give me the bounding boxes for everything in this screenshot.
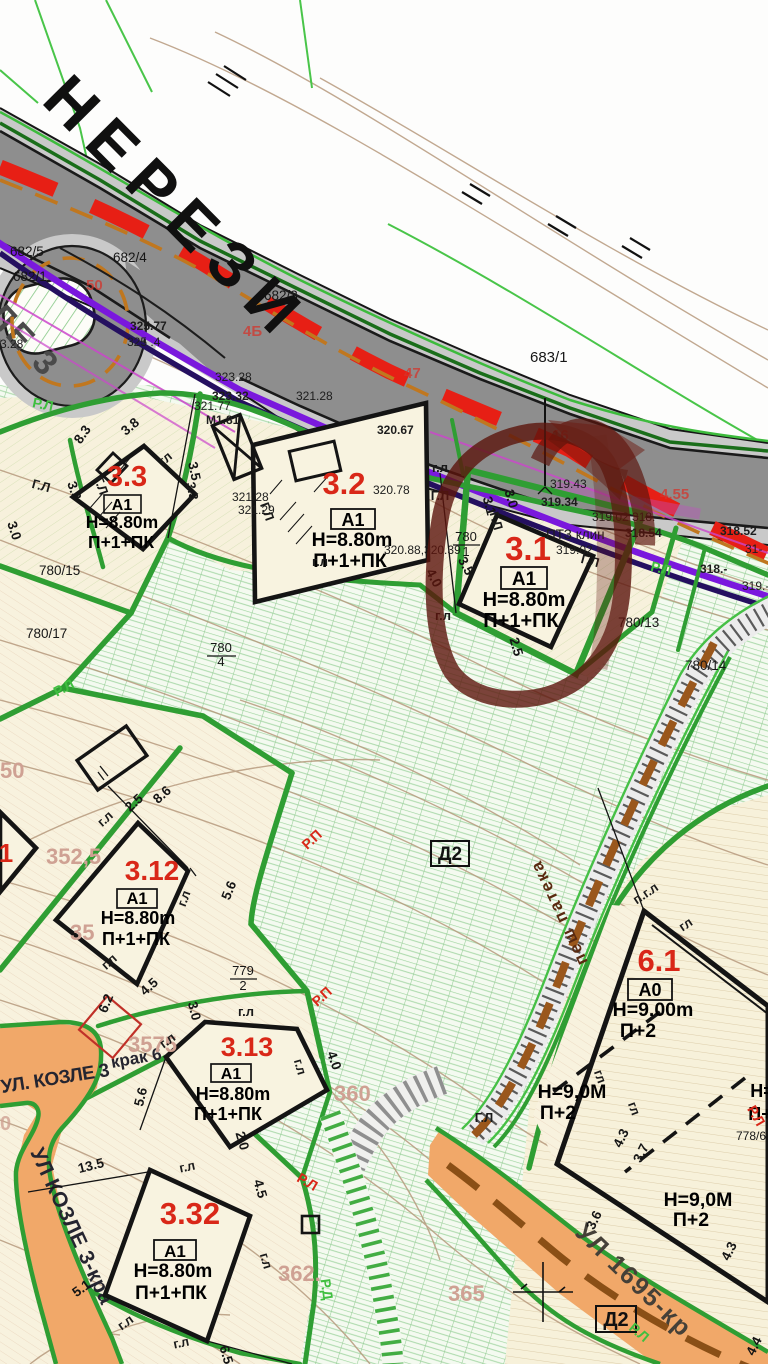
- svg-text:319.-: 319.-: [742, 579, 768, 593]
- svg-text:325 .4: 325 .4: [127, 335, 161, 349]
- svg-text:3.28: 3.28: [0, 337, 24, 351]
- svg-text:318.52: 318.52: [720, 524, 757, 538]
- svg-text:321.28: 321.28: [296, 389, 333, 403]
- svg-text:Н=8.80m: Н=8.80m: [483, 589, 566, 611]
- svg-text:П+2: П+2: [540, 1102, 576, 1124]
- svg-text:3.3: 3.3: [107, 461, 147, 493]
- svg-text:360: 360: [334, 1081, 371, 1106]
- svg-text:780: 780: [210, 640, 232, 655]
- svg-text:319.34: 319.34: [541, 495, 578, 509]
- svg-text:318.-: 318.-: [700, 562, 727, 576]
- svg-text:Г.Л: Г.Л: [475, 1110, 493, 1125]
- svg-text:А1: А1: [164, 1242, 186, 1261]
- svg-text:682/5: 682/5: [10, 244, 44, 259]
- svg-text:Н=: Н=: [750, 1081, 768, 1101]
- svg-text:50: 50: [86, 277, 103, 294]
- svg-text:А1: А1: [341, 510, 364, 530]
- svg-text:П+1+ПК: П+1+ПК: [88, 532, 154, 552]
- svg-text:683/1: 683/1: [530, 349, 568, 366]
- svg-text:35: 35: [70, 920, 94, 945]
- svg-text:2: 2: [239, 978, 246, 993]
- svg-text:320.67: 320.67: [377, 423, 414, 437]
- svg-text:г.л: г.л: [312, 554, 328, 569]
- svg-text:П+2: П+2: [620, 1020, 656, 1042]
- svg-text:780/14: 780/14: [685, 658, 727, 673]
- svg-text:3.12: 3.12: [125, 855, 180, 886]
- svg-text:4.55: 4.55: [660, 486, 689, 503]
- svg-text:321.77: 321.77: [194, 399, 231, 413]
- svg-text:319.43: 319.43: [550, 477, 587, 491]
- svg-text:П+1+ПК: П+1+ПК: [135, 1283, 207, 1304]
- svg-text:Р.Д: Р.Д: [318, 1278, 337, 1301]
- svg-text:682/4: 682/4: [113, 250, 147, 265]
- svg-text:3.2: 3.2: [322, 466, 365, 501]
- svg-text:323.28: 323.28: [215, 370, 252, 384]
- svg-text:780/15: 780/15: [39, 563, 80, 578]
- svg-text:31-: 31-: [745, 542, 762, 556]
- svg-text:3.32: 3.32: [160, 1196, 220, 1231]
- svg-text:Н=9,0М: Н=9,0М: [664, 1189, 733, 1211]
- svg-text:365: 365: [448, 1281, 485, 1306]
- svg-text:Д2: Д2: [603, 1309, 628, 1331]
- svg-text:А1: А1: [221, 1066, 242, 1083]
- svg-text:П+1+ПК: П+1+ПК: [483, 610, 559, 632]
- svg-text:П+2: П+2: [673, 1209, 709, 1231]
- svg-text:320.78: 320.78: [373, 483, 410, 497]
- svg-text:6.1: 6.1: [637, 943, 680, 978]
- svg-text:321.28: 321.28: [232, 490, 269, 504]
- svg-text:352,5: 352,5: [46, 844, 101, 869]
- svg-text:Н=8.80m: Н=8.80m: [312, 529, 393, 551]
- svg-text:А1: А1: [126, 890, 147, 908]
- svg-text:325.77: 325.77: [130, 319, 167, 333]
- svg-text:М1.81: М1.81: [206, 413, 240, 427]
- svg-text:г.л: г.л: [238, 1004, 254, 1019]
- svg-text:780: 780: [455, 529, 477, 544]
- svg-text:779: 779: [232, 963, 254, 978]
- svg-text:А1: А1: [512, 569, 537, 590]
- svg-text:г.л: г.л: [432, 460, 448, 475]
- svg-text:Н=8.80m: Н=8.80m: [86, 512, 158, 532]
- svg-text:1: 1: [0, 838, 13, 868]
- svg-text:Н=8.80m: Н=8.80m: [101, 908, 176, 928]
- svg-text:3.13: 3.13: [221, 1032, 274, 1062]
- svg-text:Н=8.80m: Н=8.80m: [196, 1084, 271, 1104]
- svg-text:47: 47: [404, 365, 421, 382]
- svg-text:0: 0: [0, 1113, 11, 1135]
- svg-text:780/17: 780/17: [26, 626, 67, 641]
- svg-text:П+1+ПК: П+1+ПК: [194, 1104, 263, 1124]
- svg-text:П+1+ПК: П+1+ПК: [102, 929, 171, 949]
- svg-text:Н=9.00m: Н=9.00m: [613, 999, 694, 1021]
- svg-text:50: 50: [0, 758, 24, 783]
- svg-text:778/6: 778/6: [736, 1129, 766, 1143]
- svg-text:Н=8.80m: Н=8.80m: [134, 1261, 213, 1282]
- svg-text:Д2: Д2: [438, 844, 462, 865]
- svg-text:362.: 362.: [278, 1261, 321, 1286]
- svg-text:3.1: 3.1: [505, 530, 551, 567]
- svg-text:682/1: 682/1: [13, 269, 47, 284]
- svg-text:А0: А0: [638, 980, 661, 1000]
- svg-text:ПТЗ клин: ПТЗ клин: [546, 527, 605, 542]
